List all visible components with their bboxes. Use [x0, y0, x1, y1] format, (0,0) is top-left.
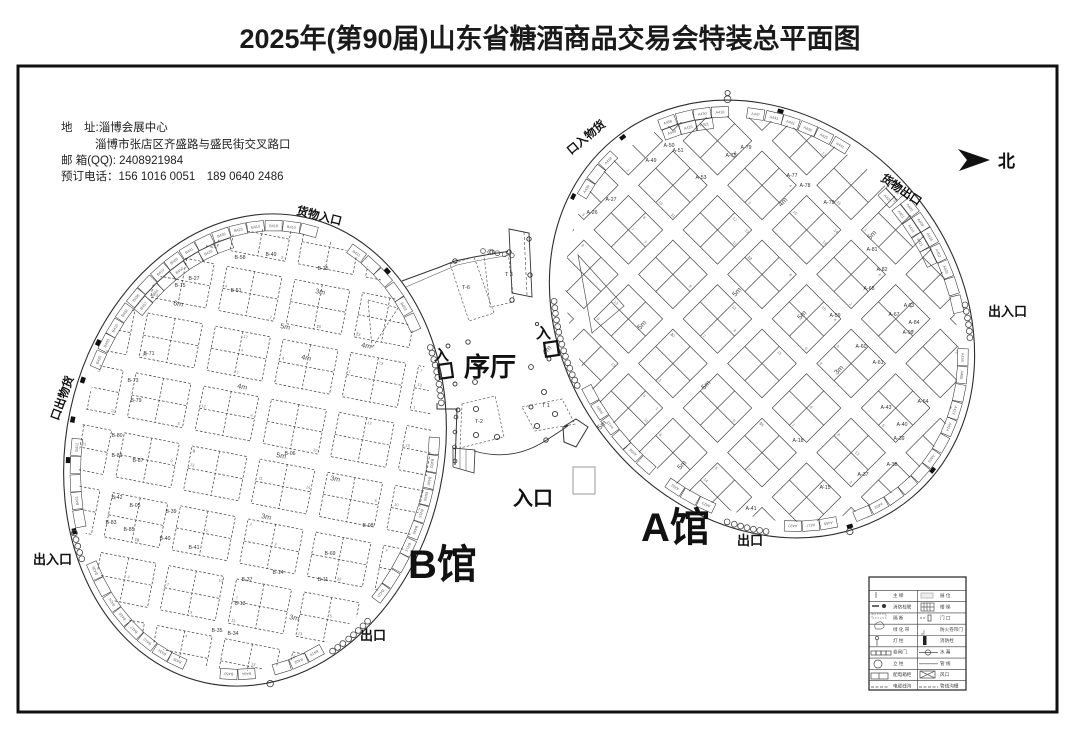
- svg-text:A-64: A-64: [918, 399, 929, 405]
- svg-text:序厅: 序厅: [464, 352, 516, 382]
- svg-text:B-13: B-13: [235, 601, 246, 607]
- svg-text:主 梯: 主 梯: [893, 592, 904, 599]
- svg-text:A馆: A馆: [641, 506, 710, 550]
- svg-text:A-38: A-38: [887, 462, 898, 468]
- svg-text:入: 入: [536, 325, 551, 342]
- svg-text:A-51: A-51: [673, 148, 684, 154]
- svg-text:B-49: B-49: [266, 252, 277, 258]
- svg-text:A-18: A-18: [793, 438, 804, 444]
- svg-text:淄博市张店区齐盛路与盛民街交叉路口: 淄博市张店区齐盛路与盛民街交叉路口: [95, 137, 291, 151]
- svg-text:B450: B450: [224, 671, 233, 676]
- svg-text:预订电话：156 1016 0051 189 0640 24: 预订电话：156 1016 0051 189 0640 2486: [61, 170, 284, 183]
- svg-text:A-84: A-84: [909, 320, 920, 326]
- svg-text:B418: B418: [269, 224, 278, 228]
- svg-text:A 63: A 63: [904, 303, 914, 309]
- svg-text:配电箱柜: 配电箱柜: [893, 671, 912, 678]
- svg-text:卷闸门: 卷闸门: [893, 649, 907, 656]
- svg-text:B412: B412: [75, 443, 80, 452]
- svg-text:B-27: B-27: [189, 276, 200, 282]
- svg-text:B-37: B-37: [242, 577, 253, 583]
- svg-text:A-78: A-78: [800, 183, 811, 189]
- svg-text:B-87: B-87: [133, 458, 144, 464]
- svg-text:邮 箱(QQ): 2408921984: 邮 箱(QQ): 2408921984: [61, 153, 184, 167]
- svg-text:B404: B404: [242, 671, 251, 676]
- svg-text:T 3: T 3: [505, 272, 513, 278]
- svg-text:隔 断: 隔 断: [893, 615, 904, 622]
- svg-text:防火卷帘门: 防火卷帘门: [940, 626, 963, 633]
- svg-text:A420: A420: [788, 524, 797, 528]
- svg-text:A-67: A-67: [889, 312, 900, 318]
- svg-text:A-26: A-26: [587, 210, 598, 216]
- svg-text:地 址:淄博会展中心: 地 址:淄博会展中心: [61, 120, 168, 134]
- svg-text:B-69: B-69: [325, 551, 336, 557]
- svg-text:A-43: A-43: [881, 405, 892, 411]
- svg-text:A-79: A-79: [741, 145, 752, 151]
- svg-text:门 口: 门 口: [940, 615, 951, 622]
- svg-text:A-59: A-59: [830, 313, 841, 319]
- svg-text:水 幕: 水 幕: [940, 649, 951, 656]
- svg-text:A-27: A-27: [606, 197, 617, 203]
- svg-text:A-41: A-41: [746, 506, 757, 512]
- svg-text:B-81: B-81: [112, 453, 123, 459]
- svg-text:A-75: A-75: [726, 153, 737, 159]
- svg-text:消防栓联: 消防栓联: [893, 603, 912, 610]
- svg-text:B-08: B-08: [363, 523, 374, 529]
- svg-text:B-42: B-42: [112, 495, 123, 501]
- svg-text:B-58: B-58: [235, 255, 246, 261]
- svg-text:A-37: A-37: [858, 472, 869, 478]
- svg-text:B-80: B-80: [112, 433, 123, 439]
- svg-text:入口: 入口: [513, 487, 553, 510]
- svg-text:B-51: B-51: [231, 288, 242, 294]
- svg-text:T 1: T 1: [542, 403, 550, 409]
- svg-text:B-11: B-11: [318, 577, 329, 583]
- svg-text:电缆线沟: 电缆线沟: [893, 682, 912, 689]
- svg-text:A-15: A-15: [820, 485, 831, 491]
- svg-text:管线沟槽: 管线沟槽: [940, 682, 959, 689]
- svg-text:A459: A459: [960, 353, 964, 362]
- svg-text:出口: 出口: [737, 533, 763, 548]
- svg-text:B-75: B-75: [175, 283, 186, 289]
- svg-text:A-81: A-81: [867, 247, 878, 253]
- svg-text:A-99: A-99: [903, 330, 914, 336]
- svg-text:B-34: B-34: [228, 631, 239, 637]
- svg-text:管 线: 管 线: [940, 660, 951, 667]
- svg-text:B-05: B-05: [130, 503, 141, 509]
- svg-text:2025年(第90届)山东省糖酒商品交易会特装总平面图: 2025年(第90届)山东省糖酒商品交易会特装总平面图: [239, 23, 860, 54]
- svg-text:B-25: B-25: [318, 266, 329, 272]
- svg-text:立 柱: 立 柱: [893, 660, 904, 667]
- svg-text:T-2: T-2: [475, 419, 483, 425]
- svg-text:T-6: T-6: [462, 285, 470, 291]
- svg-text:B-73: B-73: [128, 378, 139, 384]
- svg-text:B-40: B-40: [160, 536, 171, 542]
- svg-text:楼 梯: 楼 梯: [940, 603, 951, 610]
- svg-text:出入口: 出入口: [33, 552, 72, 567]
- svg-text:A-60: A-60: [856, 344, 867, 350]
- svg-text:A417: A417: [806, 523, 815, 528]
- svg-text:出入口: 出入口: [988, 304, 1027, 319]
- svg-text:B-35: B-35: [212, 628, 223, 634]
- svg-text:A-61: A-61: [873, 360, 884, 366]
- svg-text:B-39: B-39: [166, 509, 177, 515]
- svg-text:A-77: A-77: [787, 173, 798, 179]
- svg-text:B-85: B-85: [124, 527, 135, 533]
- svg-text:B-14: B-14: [273, 570, 284, 576]
- svg-text:出口: 出口: [360, 628, 386, 643]
- svg-text:A-68: A-68: [864, 286, 875, 292]
- svg-text:绿 化 带: 绿 化 带: [893, 626, 910, 633]
- svg-text:B馆: B馆: [408, 543, 477, 587]
- svg-text:A-82: A-82: [877, 267, 888, 273]
- svg-text:展 位: 展 位: [940, 592, 951, 599]
- svg-text:A418: A418: [716, 110, 725, 114]
- svg-text:消防栓: 消防栓: [940, 637, 954, 644]
- svg-text:B-41: B-41: [189, 545, 200, 551]
- svg-text:北: 北: [998, 152, 1015, 171]
- svg-text:B-71: B-71: [144, 351, 155, 357]
- svg-text:灯 柱: 灯 柱: [893, 637, 904, 644]
- svg-text:A-53: A-53: [696, 175, 707, 181]
- svg-text:A-79: A-79: [824, 200, 835, 206]
- svg-text:A-39: A-39: [894, 436, 905, 442]
- svg-text:B-79: B-79: [131, 398, 142, 404]
- svg-text:B-83: B-83: [106, 520, 117, 526]
- svg-text:A-49: A-49: [646, 158, 657, 164]
- svg-text:A-40: A-40: [897, 422, 908, 428]
